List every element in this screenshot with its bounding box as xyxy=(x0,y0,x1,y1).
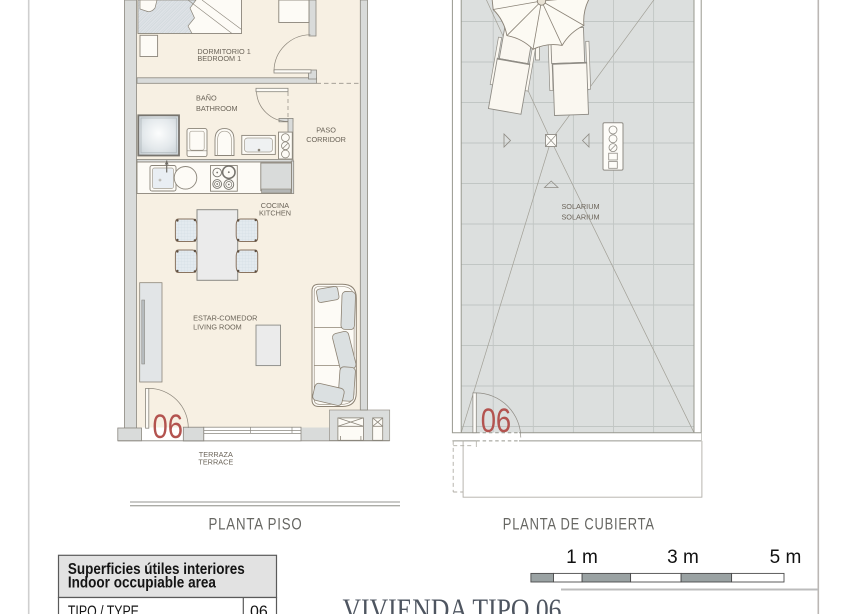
svg-text:TERRACE: TERRACE xyxy=(198,458,233,467)
svg-text:TIPO / TYPE: TIPO / TYPE xyxy=(68,604,139,614)
svg-text:06: 06 xyxy=(481,402,512,440)
svg-text:BAÑO: BAÑO xyxy=(196,94,217,103)
svg-text:VIVIENDA TIPO 06: VIVIENDA TIPO 06 xyxy=(343,592,562,614)
svg-text:KITCHEN: KITCHEN xyxy=(259,209,291,218)
svg-text:ESTAR-COMEDOR: ESTAR-COMEDOR xyxy=(193,313,257,322)
svg-text:PASO: PASO xyxy=(316,126,336,135)
svg-text:LIVING ROOM: LIVING ROOM xyxy=(193,322,242,331)
svg-text:PLANTA PISO: PLANTA PISO xyxy=(209,515,303,533)
svg-text:CORRIDOR: CORRIDOR xyxy=(306,135,346,144)
svg-text:1 m: 1 m xyxy=(566,547,598,568)
svg-text:5 m: 5 m xyxy=(770,547,802,568)
svg-text:PLANTA DE CUBIERTA: PLANTA DE CUBIERTA xyxy=(503,515,655,533)
svg-text:BEDROOM 1: BEDROOM 1 xyxy=(197,54,241,63)
svg-text:BATHROOM: BATHROOM xyxy=(196,104,238,113)
svg-text:3 m: 3 m xyxy=(667,547,699,568)
svg-text:06: 06 xyxy=(153,408,184,446)
svg-text:SOLARIUM: SOLARIUM xyxy=(561,213,599,222)
svg-text:SOLARIUM: SOLARIUM xyxy=(561,202,599,211)
svg-text:Indoor occupiable area: Indoor occupiable area xyxy=(68,575,216,592)
svg-text:06: 06 xyxy=(250,604,268,614)
